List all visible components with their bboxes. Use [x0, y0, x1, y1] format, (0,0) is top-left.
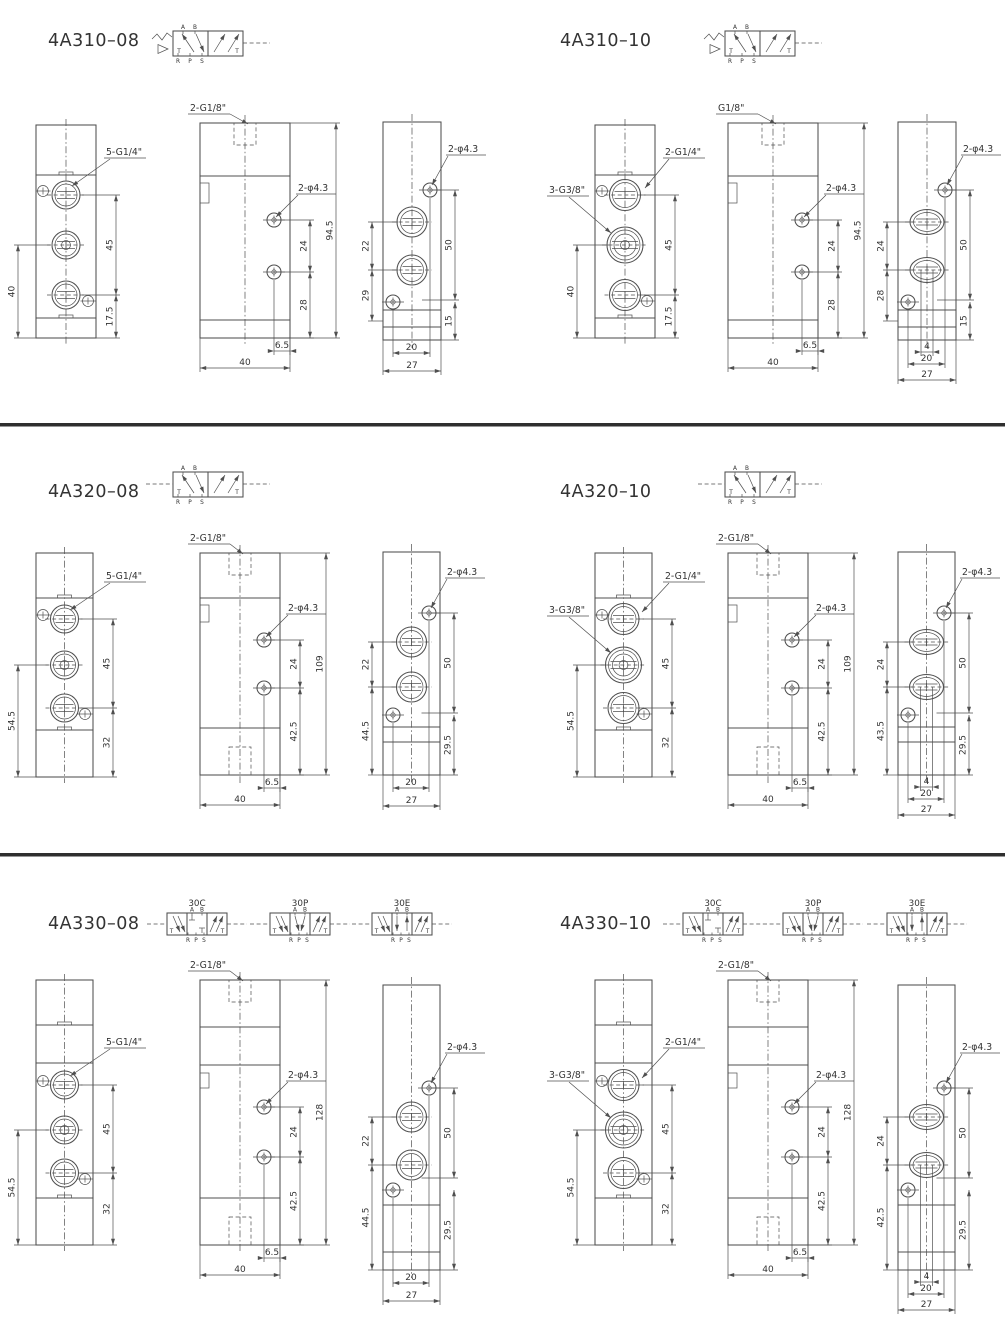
- dim-arrowhead: [968, 334, 972, 340]
- dim-label: 128: [316, 1104, 326, 1121]
- dim-arrowhead: [885, 222, 889, 228]
- dim-arrowhead: [298, 640, 302, 646]
- dim-arrowhead: [200, 1273, 206, 1277]
- symbol-port-letter: S: [305, 938, 309, 944]
- hole-diameter-label: 2-φ4.3: [288, 603, 318, 614]
- dim-label: 40: [234, 1265, 246, 1275]
- dim-label: 42.5: [818, 1191, 828, 1211]
- dim-arrowhead: [939, 915, 945, 922]
- dim-arrowhead: [575, 1239, 579, 1245]
- dim-arrowhead: [908, 362, 914, 366]
- dim-arrowhead: [370, 1159, 374, 1165]
- dim-arrowhead: [298, 682, 302, 688]
- symbol-port-letter: S: [718, 938, 722, 944]
- dim-arrowhead: [944, 1077, 950, 1084]
- hole-diameter-label: 2-φ4.3: [288, 1070, 318, 1081]
- drawing-rect: [270, 913, 330, 935]
- dim-arrowhead: [967, 1172, 971, 1178]
- dim-arrowhead: [670, 1167, 674, 1173]
- dim-arrowhead: [298, 769, 302, 775]
- dim-label: 50: [444, 1127, 454, 1139]
- dim-arrowhead: [901, 926, 907, 933]
- dim-arrowhead: [752, 46, 758, 53]
- dim-arrowhead: [258, 1256, 264, 1260]
- dim-arrowhead: [200, 803, 206, 807]
- dim-arrowhead: [114, 195, 118, 201]
- dim-arrowhead: [885, 1264, 889, 1270]
- valve-symbol-53-variant: 30CABRPSTT: [147, 899, 247, 944]
- symbol-port-letter: B: [920, 908, 924, 914]
- dim-arrowhead: [967, 613, 971, 619]
- dim-arrowhead: [370, 264, 374, 270]
- port-thread-label: 3-G3/8": [549, 605, 585, 616]
- dim-arrowhead: [16, 1130, 20, 1136]
- dim-arrowhead: [111, 771, 115, 777]
- drawing-rect: [728, 605, 737, 622]
- dim-arrowhead: [885, 642, 889, 648]
- dim-label: 44.5: [362, 1207, 372, 1227]
- dim-arrowhead: [829, 915, 835, 922]
- symbol-port-letter: S: [922, 938, 926, 944]
- symbol-port-letter: R: [176, 500, 180, 506]
- dim-label: 40: [762, 1265, 774, 1275]
- symbol-port-letter: T: [234, 490, 239, 496]
- hole-diameter-label: 2-φ4.3: [298, 183, 328, 194]
- dim-arrowhead: [180, 33, 187, 40]
- dim-arrowhead: [213, 915, 219, 922]
- dim-arrowhead: [452, 1264, 456, 1270]
- dim-arrowhead: [280, 1256, 286, 1260]
- pilot-triangle-icon: [710, 45, 720, 54]
- dim-arrowhead: [898, 1308, 904, 1312]
- symbol-port-letter: R: [289, 938, 293, 944]
- dim-arrowhead: [452, 1190, 456, 1196]
- dim-arrowhead: [920, 916, 924, 922]
- dim-label: 94.5: [326, 220, 336, 240]
- dim-label: 24: [818, 1126, 828, 1138]
- panel-title: 4A320–08: [48, 482, 140, 502]
- hole-diameter-label: 2-φ4.3: [962, 1042, 992, 1053]
- symbol-port-letter: B: [200, 908, 204, 914]
- dim-arrowhead: [423, 1281, 429, 1285]
- dim-arrowhead: [324, 553, 328, 559]
- dim-arrowhead: [836, 266, 840, 272]
- dim-label: 6.5: [793, 778, 807, 788]
- hole-diameter-label: 2-φ4.3: [816, 1070, 846, 1081]
- dim-arrowhead: [949, 813, 955, 817]
- dim-arrowhead: [885, 264, 889, 270]
- symbol-port-letter: P: [740, 59, 744, 65]
- drawing-line: [569, 1082, 611, 1118]
- dim-arrowhead: [111, 1167, 115, 1173]
- dim-arrowhead: [370, 1264, 374, 1270]
- dim-label: 22: [362, 1135, 372, 1146]
- dim-arrowhead: [808, 1256, 814, 1260]
- dim-label: 20: [921, 354, 933, 364]
- drawing-rect: [200, 183, 209, 203]
- drawing-line: [70, 583, 110, 610]
- drawing-line: [72, 159, 110, 186]
- dim-arrowhead: [898, 813, 904, 817]
- dim-arrowhead: [728, 366, 734, 370]
- symbol-port-letter: R: [906, 938, 910, 944]
- dim-arrowhead: [114, 289, 118, 295]
- drawing-rect: [683, 913, 743, 935]
- dim-arrowhead: [826, 1239, 830, 1245]
- symbol-port-letter: T: [176, 49, 181, 55]
- dim-label: 32: [103, 1203, 113, 1214]
- dim-label: 6.5: [265, 1248, 279, 1258]
- dim-arrowhead: [752, 487, 758, 494]
- dim-label: 27: [921, 1300, 932, 1310]
- dim-arrowhead: [765, 976, 772, 983]
- dim-arrowhead: [324, 769, 328, 775]
- panel-title: 4A310–08: [48, 31, 140, 51]
- dim-arrowhead: [381, 926, 387, 933]
- dim-arrowhead: [885, 1159, 889, 1165]
- side-view: 2-G1/8"2-φ4.32442.51286.540: [716, 960, 858, 1279]
- dim-arrowhead: [452, 707, 456, 713]
- dim-arrowhead: [176, 926, 182, 933]
- dim-arrowhead: [898, 378, 904, 382]
- symbol-port-letter: B: [745, 466, 749, 472]
- dim-label: 32: [662, 1203, 672, 1214]
- dim-arrowhead: [220, 33, 227, 40]
- dim-label: 17.5: [106, 306, 116, 326]
- panel-4a330-08: 4A330–0830CABRPSTT30PABRPSTT30EABRPSTT45…: [8, 899, 486, 1305]
- symbol-port-letter: P: [297, 938, 301, 944]
- dim-label: 109: [316, 655, 326, 672]
- dim-arrowhead: [729, 915, 735, 922]
- dim-label: 27: [406, 1291, 417, 1301]
- symbol-port-letter: A: [733, 25, 737, 31]
- symbol-port-letter: T: [176, 490, 181, 496]
- dim-label: 20: [920, 789, 932, 799]
- drawing-rect: [887, 913, 947, 935]
- dim-label: 4: [924, 1272, 930, 1282]
- dim-arrowhead: [430, 179, 436, 186]
- dim-label: 54.5: [567, 711, 577, 731]
- dim-arrowhead: [324, 980, 328, 986]
- dim-arrowhead: [370, 270, 374, 276]
- symbol-port-letter: R: [391, 938, 395, 944]
- front-view: 4517.5402-G1/4"3-G3/8": [547, 119, 705, 344]
- symbol-port-letter: S: [407, 938, 411, 944]
- dim-arrowhead: [885, 315, 889, 321]
- port-thread-label: 5-G1/4": [106, 1037, 142, 1048]
- dim-arrowhead: [370, 315, 374, 321]
- dim-label: 24: [877, 1135, 887, 1147]
- dim-arrowhead: [862, 123, 866, 129]
- dim-label: 6.5: [803, 341, 817, 351]
- dim-arrowhead: [735, 915, 741, 922]
- dim-arrowhead: [896, 926, 902, 933]
- dim-arrowhead: [284, 366, 290, 370]
- symbol-port-letter: A: [806, 908, 810, 914]
- port-thread-label: 3-G3/8": [549, 185, 585, 196]
- valve-symbol-double: ABRPSTT: [698, 466, 822, 506]
- valve-symbol-53-variant: 30CABRPSTT: [663, 899, 763, 944]
- dim-label: 42.5: [877, 1207, 887, 1227]
- dim-label: 29.5: [959, 1220, 969, 1240]
- dim-arrowhead: [575, 771, 579, 777]
- dim-arrowhead: [274, 1273, 280, 1277]
- symbol-port-letter: R: [802, 938, 806, 944]
- dim-arrowhead: [370, 1165, 374, 1171]
- dim-arrowhead: [808, 924, 813, 931]
- dim-arrowhead: [111, 1085, 115, 1091]
- dim-arrowhead: [220, 474, 227, 481]
- dim-label: 24: [300, 240, 310, 252]
- dim-arrowhead: [370, 681, 374, 687]
- dim-arrowhead: [452, 613, 456, 619]
- panel-4a320-10: 4A320–10ABRPSTT453254.52-G1/4"3-G3/8"2-G…: [547, 466, 1000, 819]
- symbol-port-letter: T: [220, 929, 225, 935]
- dim-arrowhead: [786, 786, 792, 790]
- dim-arrowhead: [826, 1107, 830, 1113]
- dim-arrowhead: [219, 915, 225, 922]
- drawing-line: [569, 197, 611, 233]
- valve-symbol-53-variant: 30EABRPSTT: [867, 899, 967, 944]
- dim-label: 50: [959, 657, 969, 669]
- dim-arrowhead: [453, 190, 457, 196]
- dim-arrowhead: [405, 916, 409, 922]
- dim-arrowhead: [234, 474, 241, 481]
- dim-arrowhead: [298, 1239, 302, 1245]
- spring-return-icon: [152, 33, 172, 40]
- symbol-port-letter: P: [740, 500, 744, 506]
- dim-arrowhead: [670, 1085, 674, 1091]
- valve-symbol-53-variant: 30EABRPSTT: [352, 899, 452, 944]
- dim-label: 40: [567, 286, 577, 298]
- symbol-port-letter: T: [728, 490, 733, 496]
- dim-arrowhead: [575, 1130, 579, 1136]
- drawing-rect: [728, 183, 737, 203]
- port-thread-label: 2-G1/8": [718, 960, 754, 971]
- symbol-port-letter: S: [752, 500, 756, 506]
- dim-arrowhead: [114, 295, 118, 301]
- dim-arrowhead: [111, 1173, 115, 1179]
- dim-arrowhead: [234, 33, 241, 40]
- symbol-port-letter: A: [293, 908, 297, 914]
- symbol-port-letter: B: [745, 25, 749, 31]
- dim-label: 27: [921, 370, 932, 380]
- section-divider: [0, 853, 1005, 857]
- dim-arrowhead: [237, 549, 244, 556]
- dim-arrowhead: [772, 474, 779, 481]
- symbol-port-letter: P: [188, 500, 192, 506]
- dim-arrowhead: [308, 266, 312, 272]
- symbol-port-letter: R: [728, 59, 732, 65]
- dim-arrowhead: [453, 302, 457, 308]
- dim-arrowhead: [670, 1173, 674, 1179]
- dim-arrowhead: [290, 349, 296, 353]
- symbol-port-letter: A: [395, 908, 399, 914]
- dim-arrowhead: [885, 270, 889, 276]
- drawing-rect: [200, 605, 209, 622]
- dim-label: 27: [921, 805, 932, 815]
- drawing-rect: [372, 913, 432, 935]
- panel-4a310-10: 4A310–10ABRPSTT4517.5402-G1/4"3-G3/8"G1/…: [547, 25, 1001, 384]
- dim-label: 50: [445, 239, 455, 251]
- dim-label: 42.5: [818, 721, 828, 741]
- symbol-port-letter: T: [736, 929, 741, 935]
- dim-arrowhead: [418, 915, 424, 922]
- port-thread-label: 2-G1/4": [665, 1037, 701, 1048]
- dim-label: 43.5: [877, 721, 887, 741]
- dim-arrowhead: [933, 785, 939, 789]
- dim-arrowhead: [908, 797, 914, 801]
- panel-4a320-08: 4A320–08ABRPSTT453254.55-G1/4"2-G1/8"2-φ…: [8, 466, 486, 810]
- dim-label: 20: [920, 1284, 932, 1294]
- dim-label: 42.5: [290, 1191, 300, 1211]
- dim-label: 40: [239, 358, 251, 368]
- dim-label: 45: [106, 239, 116, 250]
- symbol-port-letter: P: [194, 938, 198, 944]
- spring-return-icon: [704, 33, 724, 40]
- dim-label: 24: [818, 658, 828, 670]
- dim-arrowhead: [16, 245, 20, 251]
- dim-arrowhead: [836, 332, 840, 338]
- dim-arrowhead: [370, 769, 374, 775]
- dim-arrowhead: [967, 715, 971, 721]
- dim-arrowhead: [852, 980, 856, 986]
- valve-dimension-catalog-page: 4A310–08ABRPSTT4517.5405-G1/4"2-G1/8"2-φ…: [0, 0, 1005, 1320]
- dim-arrowhead: [452, 769, 456, 775]
- dim-arrowhead: [968, 302, 972, 308]
- dim-label: 15: [960, 315, 970, 326]
- symbol-port-letter: T: [940, 929, 945, 935]
- dim-arrowhead: [424, 351, 430, 355]
- symbol-port-letter: S: [200, 59, 204, 65]
- symbol-port-letter: T: [323, 929, 328, 935]
- dim-arrowhead: [728, 1273, 734, 1277]
- dim-label: 28: [877, 290, 887, 302]
- dim-label: 24: [290, 658, 300, 670]
- dim-arrowhead: [181, 926, 187, 933]
- symbol-port-letter: P: [710, 938, 714, 944]
- port-thread-label: 2-G1/8": [190, 103, 226, 114]
- dim-label: 24: [877, 240, 887, 252]
- dim-label: 24: [828, 240, 838, 252]
- symbol-port-letter: T: [685, 929, 690, 935]
- dim-arrowhead: [670, 708, 674, 714]
- dim-arrowhead: [434, 804, 440, 808]
- dim-label: 54.5: [567, 1177, 577, 1197]
- dim-arrowhead: [274, 803, 280, 807]
- dim-arrowhead: [967, 1190, 971, 1196]
- dim-arrowhead: [452, 1172, 456, 1178]
- panel-title: 4A330–10: [560, 914, 652, 934]
- port-thread-label: 2-G1/8": [718, 533, 754, 544]
- dim-arrowhead: [308, 220, 312, 226]
- symbol-port-letter: B: [193, 25, 197, 31]
- dim-label: 22: [362, 659, 372, 670]
- dim-arrowhead: [386, 926, 392, 933]
- dim-label: 44.5: [362, 721, 372, 741]
- dim-arrowhead: [786, 474, 793, 481]
- dim-arrowhead: [885, 1165, 889, 1171]
- end-view: 2-φ4.32244.55029.52027: [362, 977, 486, 1305]
- dim-arrowhead: [383, 804, 389, 808]
- dim-arrowhead: [826, 688, 830, 694]
- symbol-port-letter: T: [889, 929, 894, 935]
- dim-arrowhead: [728, 803, 734, 807]
- dim-label: 54.5: [8, 711, 18, 731]
- dim-arrowhead: [429, 1077, 435, 1084]
- dim-label: 40: [234, 795, 246, 805]
- dim-arrowhead: [200, 46, 206, 53]
- dim-label: 15: [445, 315, 455, 326]
- symbol-port-letter: S: [202, 938, 206, 944]
- dim-arrowhead: [114, 332, 118, 338]
- port-thread-label: 2-G1/8": [190, 960, 226, 971]
- dim-arrowhead: [938, 797, 944, 801]
- dim-label: 28: [300, 299, 310, 311]
- dim-label: 27: [406, 361, 417, 371]
- side-view: 2-G1/8"2-φ4.32442.51286.540: [188, 960, 330, 1279]
- dim-label: 40: [767, 358, 779, 368]
- dim-arrowhead: [284, 926, 290, 933]
- hole-diameter-label: 2-φ4.3: [447, 1042, 477, 1053]
- dim-arrowhead: [885, 681, 889, 687]
- dim-label: 20: [405, 778, 417, 788]
- dim-arrowhead: [692, 926, 698, 933]
- dim-arrowhead: [852, 1239, 856, 1245]
- dim-arrowhead: [697, 926, 703, 933]
- dim-label: 45: [662, 658, 672, 669]
- panel-title: 4A310–10: [560, 31, 652, 51]
- panel-title: 4A330–08: [48, 914, 140, 934]
- symbol-port-letter: T: [234, 49, 239, 55]
- dim-label: 22: [362, 240, 372, 251]
- valve-symbol-double: ABRPSTT: [146, 466, 270, 506]
- symbol-port-letter: A: [181, 466, 185, 472]
- front-view: 453254.55-G1/4": [8, 974, 147, 1251]
- dim-arrowhead: [772, 33, 779, 40]
- symbol-port-letter: P: [399, 938, 403, 944]
- valve-symbol-53-variant: 30PABRPSTT: [250, 899, 350, 944]
- dim-label: 45: [662, 1123, 672, 1134]
- dim-arrowhead: [200, 487, 206, 494]
- port-thread-label: 5-G1/4": [106, 147, 142, 158]
- dim-label: 4: [924, 777, 930, 787]
- dim-arrowhead: [786, 1256, 792, 1260]
- port-thread-label: 2-G1/8": [190, 533, 226, 544]
- dim-label: 20: [405, 1273, 417, 1283]
- symbol-port-letter: P: [188, 59, 192, 65]
- dim-arrowhead: [908, 1292, 914, 1296]
- section-divider: [0, 423, 1005, 427]
- dim-arrowhead: [967, 707, 971, 713]
- symbol-port-letter: T: [169, 929, 174, 935]
- side-view: G1/8"2-φ4.3242894.56.540: [716, 103, 868, 372]
- dim-arrowhead: [423, 786, 429, 790]
- dim-arrowhead: [334, 123, 338, 129]
- symbol-port-letter: T: [374, 929, 379, 935]
- dim-label: 6.5: [275, 341, 289, 351]
- dim-arrowhead: [393, 786, 399, 790]
- dim-arrowhead: [452, 715, 456, 721]
- symbol-port-letter: A: [181, 25, 185, 31]
- dim-label: 27: [406, 796, 417, 806]
- drawing-rect: [783, 913, 843, 935]
- dim-arrowhead: [16, 771, 20, 777]
- dim-arrowhead: [575, 332, 579, 338]
- side-view: 2-G1/8"2-φ4.32442.51096.540: [188, 533, 330, 809]
- dim-arrowhead: [575, 245, 579, 251]
- dim-arrowhead: [852, 769, 856, 775]
